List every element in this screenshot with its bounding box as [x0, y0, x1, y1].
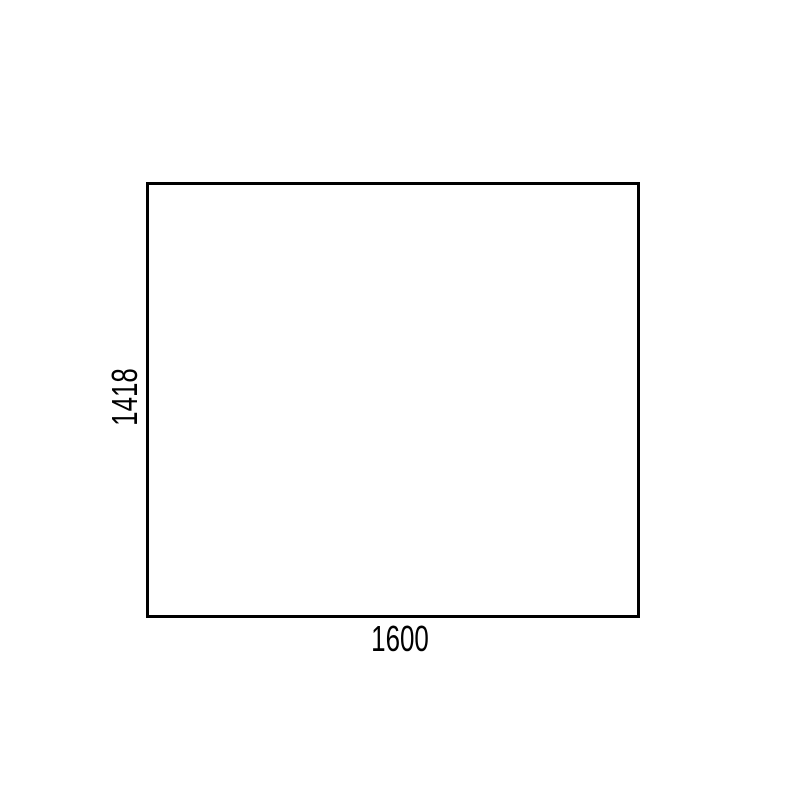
dimension-diagram: 1418 1600: [0, 0, 800, 800]
part-outline-rect: [146, 182, 640, 618]
height-dimension-label: 1418: [107, 368, 143, 426]
width-dimension-label: 1600: [371, 621, 429, 657]
